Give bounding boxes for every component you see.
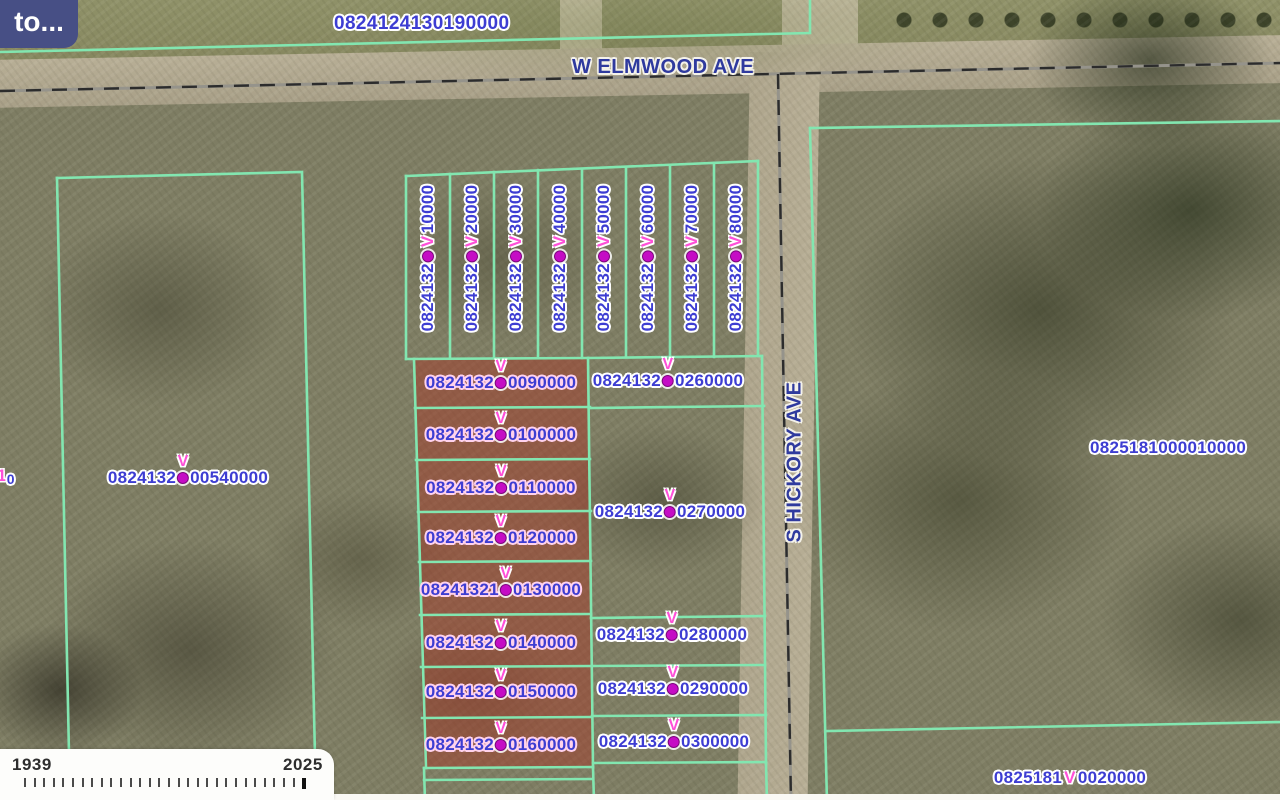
parcel-label-70000[interactable]: 0824132 V 70000 — [682, 185, 702, 332]
timeline-tick[interactable] — [273, 778, 275, 787]
parcel-id-suffix: 70000 — [682, 185, 702, 234]
point-marker-icon — [422, 250, 434, 262]
v-flag-icon: V — [496, 513, 507, 531]
parcel-id-prefix: 0824132 — [426, 528, 494, 548]
point-marker-icon — [598, 250, 610, 262]
parcel-id-suffix: 0020000 — [1078, 768, 1146, 788]
parcel-id-prefix: 0824132 — [426, 633, 494, 653]
timeline-tick[interactable] — [120, 778, 122, 787]
timeline-tick[interactable] — [139, 778, 141, 787]
parcel-id-suffix: 0260000 — [675, 371, 743, 391]
v-flag-icon: V — [667, 610, 678, 628]
v-flag-icon: V — [663, 356, 674, 374]
timeline-tick[interactable] — [91, 778, 93, 787]
partial-pink-text: 1 — [0, 466, 7, 486]
parcel-label-0300000[interactable]: 0824132 V 0300000 — [599, 732, 750, 752]
parcel-id-suffix: 0280000 — [679, 625, 747, 645]
parcel-marker — [422, 250, 434, 262]
parcel-id-suffix: 00540000 — [190, 468, 268, 488]
parcel-marker: V — [662, 375, 674, 387]
parcel-label-0020000[interactable]: 0825181 V 0020000 — [994, 768, 1146, 788]
parcel-id-suffix: 0090000 — [508, 373, 576, 393]
parcel-id-suffix: 0120000 — [508, 528, 576, 548]
parcel-label-00540000[interactable]: 0824132 V 00540000 — [108, 468, 268, 488]
v-flag-icon: V — [638, 235, 658, 247]
point-marker-icon — [664, 506, 676, 518]
v-flag-icon: V — [418, 235, 438, 247]
parcel-id-suffix: 0100000 — [508, 425, 576, 445]
point-marker-icon — [495, 686, 507, 698]
point-marker-icon — [495, 637, 507, 649]
timeline-tick[interactable] — [206, 778, 208, 787]
parcel-label-30000[interactable]: 0824132 V 30000 — [506, 185, 526, 332]
point-marker-icon — [668, 736, 680, 748]
parcel-label-0160000[interactable]: 0824132 V 0160000 — [426, 735, 577, 755]
timeline-tick[interactable] — [72, 778, 74, 787]
parcel-id-suffix: 80000 — [726, 185, 746, 234]
parcel-id-prefix: 0824132 — [594, 263, 614, 331]
parcel-id-suffix: 0160000 — [508, 735, 576, 755]
parcel-id-prefix: 0824132 — [426, 425, 494, 445]
v-flag-icon: V — [496, 358, 507, 376]
timeline-tick[interactable] — [82, 778, 84, 787]
parcel-marker: V — [495, 532, 507, 544]
parcel-marker: V — [177, 472, 189, 484]
parcel-marker: V — [495, 637, 507, 649]
v-flag-icon: V — [496, 667, 507, 685]
parcel-label-40000[interactable]: 0824132 V 40000 — [550, 185, 570, 332]
parcel-id-suffix: 30000 — [506, 185, 526, 234]
parcel-id: 0825181000010000 — [1090, 438, 1246, 458]
timeline-start-year: 1939 — [12, 755, 52, 775]
parcel-id-prefix: 0824132 — [599, 732, 667, 752]
timeline-tick[interactable] — [293, 778, 295, 787]
timeline-slider-panel[interactable]: 1939 2025 — [0, 749, 334, 800]
parcel-id-suffix: 0130000 — [513, 580, 581, 600]
parcel-label-20000[interactable]: 0824132 V 20000 — [462, 185, 482, 332]
point-marker-icon — [510, 250, 522, 262]
point-marker-icon — [642, 250, 654, 262]
point-marker-icon — [730, 250, 742, 262]
parcel-marker: V — [495, 429, 507, 441]
parcel-label-0290000[interactable]: 0824132 V 0290000 — [598, 679, 749, 699]
v-flag-icon: V — [1064, 768, 1076, 788]
point-marker-icon — [662, 375, 674, 387]
timeline-tick[interactable] — [254, 778, 256, 787]
parcel-label-0110000[interactable]: 0824132 V 0110000 — [426, 478, 576, 498]
parcel-id-suffix: 0110000 — [508, 478, 575, 498]
timeline-handle[interactable] — [302, 778, 306, 789]
parcel-id-prefix: 0824132 — [597, 625, 665, 645]
v-flag-icon: V — [178, 453, 189, 471]
parcel-marker — [466, 250, 478, 262]
parcel-id-prefix: 0824132 — [418, 263, 438, 331]
parcel-label-0130000[interactable]: 08241321 V 0130000 — [421, 580, 581, 600]
v-flag-icon: V — [496, 618, 507, 636]
parcel-label-80000[interactable]: 0824132 V 80000 — [726, 185, 746, 332]
parcel-id-prefix: 0824132 — [426, 682, 494, 702]
v-flag-icon: V — [665, 487, 676, 505]
parcel-id-suffix: 0270000 — [677, 502, 745, 522]
partial-blue-text: 0 — [7, 471, 15, 487]
parcel-id-suffix: 0300000 — [681, 732, 749, 752]
v-flag-icon: V — [550, 235, 570, 247]
v-flag-icon: V — [496, 410, 507, 428]
street-label-hickory: S HICKORY AVE — [784, 382, 807, 543]
point-marker-icon — [686, 250, 698, 262]
parcel-marker: V — [668, 736, 680, 748]
parcel-marker — [686, 250, 698, 262]
parcel-id-prefix: 0825181 — [994, 768, 1062, 788]
parcel-label-60000[interactable]: 0824132 V 60000 — [638, 185, 658, 332]
parcel-id-suffix: 40000 — [550, 185, 570, 234]
v-flag-icon: V — [462, 235, 482, 247]
timeline-tick[interactable] — [197, 778, 199, 787]
timeline-tick[interactable] — [34, 778, 36, 787]
v-flag-icon: V — [496, 720, 507, 738]
timeline-end-year: 2025 — [283, 755, 323, 775]
v-flag-icon: V — [669, 717, 680, 735]
parcel-marker: V — [664, 506, 676, 518]
parcel-marker — [554, 250, 566, 262]
parcel-id-prefix: 0824132 — [426, 735, 494, 755]
back-to-button[interactable]: to... — [0, 0, 78, 48]
parcel-id-suffix: 10000 — [418, 185, 438, 234]
v-flag-icon: V — [668, 664, 679, 682]
parcel-id-prefix: 0824132 — [462, 263, 482, 331]
parcel-marker — [598, 250, 610, 262]
parcel-id-prefix: 0824132 — [593, 371, 661, 391]
timeline-tick[interactable] — [43, 778, 45, 787]
parcel-label-0090000[interactable]: 0824132 V 0090000 — [426, 373, 577, 393]
timeline-tick[interactable] — [24, 778, 26, 787]
v-flag-icon: V — [506, 235, 526, 247]
parcel-id-suffix: 50000 — [594, 185, 614, 234]
parcel-label-edge-partial: 1 0 — [0, 466, 15, 486]
parcel-label-0140000[interactable]: 0824132 V 0140000 — [426, 633, 577, 653]
parcel-id-suffix: 60000 — [638, 185, 658, 234]
v-flag-icon: V — [726, 235, 746, 247]
timeline-tick[interactable] — [235, 778, 237, 787]
point-marker-icon — [666, 629, 678, 641]
parcel-marker: V — [495, 686, 507, 698]
parcel-marker — [510, 250, 522, 262]
parcel-label-0120000[interactable]: 0824132 V 0120000 — [426, 528, 577, 548]
parcel-id-prefix: 0824132 — [638, 263, 658, 331]
parcel-id-prefix: 0824132 — [426, 373, 494, 393]
point-marker-icon — [495, 429, 507, 441]
parcel-id: 0824124130190000 — [334, 13, 509, 35]
timeline-tick[interactable] — [168, 778, 170, 787]
timeline-tick[interactable] — [245, 778, 247, 787]
timeline-tick[interactable] — [225, 778, 227, 787]
v-flag-icon: V — [594, 235, 614, 247]
parcel-label-0824124130190000[interactable]: 0824124130190000 — [334, 13, 509, 35]
parcel-label-0280000[interactable]: 0824132 V 0280000 — [597, 625, 748, 645]
point-marker-icon — [554, 250, 566, 262]
parcel-label-0150000[interactable]: 0824132 V 0150000 — [426, 682, 577, 702]
parcel-id-prefix: 0824132 — [426, 478, 494, 498]
point-marker-icon — [500, 584, 512, 596]
parcel-label-0260000[interactable]: 0824132 V 0260000 — [593, 371, 744, 391]
parcel-marker: V — [495, 377, 507, 389]
parcel-id-suffix: 0150000 — [508, 682, 576, 702]
timeline-tick[interactable] — [264, 778, 266, 787]
parcel-id-suffix: 0140000 — [508, 633, 576, 653]
parcel-id-prefix: 0824132 — [550, 263, 570, 331]
street-label-elmwood: W ELMWOOD AVE — [572, 56, 754, 79]
parcel-id-suffix: 20000 — [462, 185, 482, 234]
map-canvas[interactable]: W ELMWOOD AVE S HICKORY AVE 082412413019… — [0, 0, 1280, 800]
point-marker-icon — [495, 482, 507, 494]
timeline-tick[interactable] — [149, 778, 151, 787]
timeline-tick[interactable] — [53, 778, 55, 787]
parcel-marker: V — [495, 482, 507, 494]
timeline-ticks[interactable] — [24, 778, 324, 790]
parcel-id-prefix: 0824132 — [108, 468, 176, 488]
point-marker-icon — [495, 739, 507, 751]
parcel-id-suffix: 0290000 — [680, 679, 748, 699]
parcel-id-prefix: 0824132 — [726, 263, 746, 331]
point-marker-icon — [466, 250, 478, 262]
parcel-label-10000[interactable]: 0824132 V 10000 — [418, 185, 438, 332]
v-flag-icon: V — [496, 463, 507, 481]
timeline-tick[interactable] — [101, 778, 103, 787]
timeline-tick[interactable] — [178, 778, 180, 787]
parcel-marker: V — [666, 629, 678, 641]
point-marker-icon — [495, 377, 507, 389]
parcel-marker: V — [500, 584, 512, 596]
parcel-label-0825181000010000[interactable]: 0825181000010000 — [1090, 438, 1246, 458]
parcel-id-prefix: 0824132 — [506, 263, 526, 331]
v-flag-icon: V — [500, 565, 511, 583]
parcel-id-prefix: 0824132 — [682, 263, 702, 331]
timeline-tick[interactable] — [283, 778, 285, 787]
v-flag-icon: V — [682, 235, 702, 247]
timeline-tick[interactable] — [130, 778, 132, 787]
timeline-tick[interactable] — [110, 778, 112, 787]
point-marker-icon — [495, 532, 507, 544]
parcel-marker: V — [667, 683, 679, 695]
parcel-id-prefix: 0824132 — [598, 679, 666, 699]
parcel-marker — [730, 250, 742, 262]
timeline-tick[interactable] — [216, 778, 218, 787]
point-marker-icon — [177, 472, 189, 484]
timeline-tick[interactable] — [158, 778, 160, 787]
parcel-label-50000[interactable]: 0824132 V 50000 — [594, 185, 614, 332]
parcel-label-0270000[interactable]: 0824132 V 0270000 — [595, 502, 746, 522]
parcel-label-0100000[interactable]: 0824132 V 0100000 — [426, 425, 577, 445]
point-marker-icon — [667, 683, 679, 695]
timeline-tick[interactable] — [62, 778, 64, 787]
timeline-tick[interactable] — [187, 778, 189, 787]
parcel-id-prefix: 08241321 — [421, 580, 499, 600]
parcel-marker — [642, 250, 654, 262]
parcel-id-prefix: 0824132 — [595, 502, 663, 522]
parcel-marker: V — [495, 739, 507, 751]
